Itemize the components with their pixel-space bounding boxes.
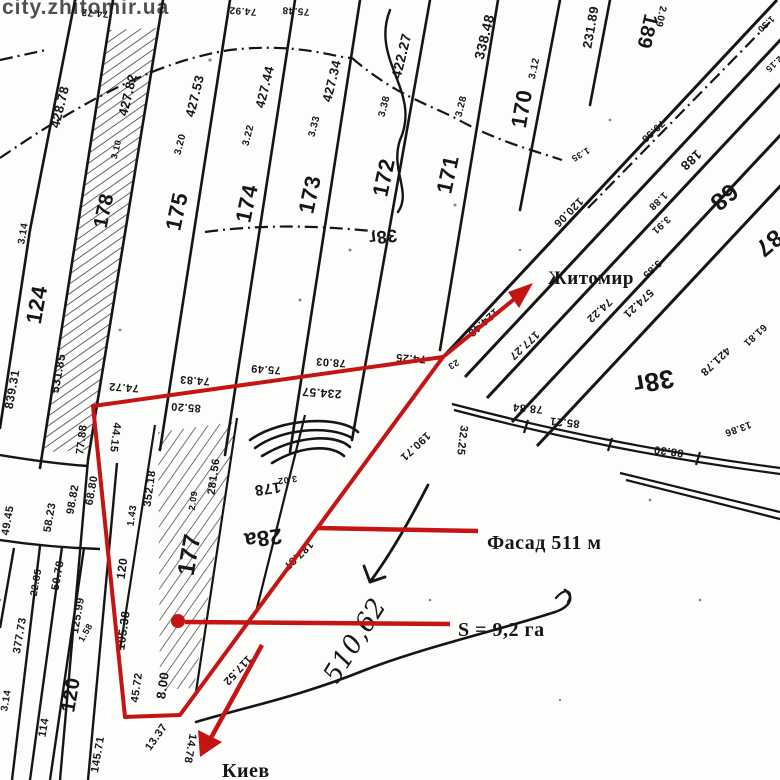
red-arrowheads-and-dot <box>171 283 533 757</box>
map-measure-label: 8.00 <box>153 671 172 700</box>
map-measure-label: 75.49 <box>250 362 281 376</box>
diagonal-road-band <box>443 0 780 446</box>
map-measure-label: 38г <box>367 225 398 248</box>
map-measure-label: 49.45 <box>0 505 17 537</box>
map-measure-label: 45.72 <box>129 672 145 703</box>
map-measure-label: 44.15 <box>107 422 123 453</box>
map-measure-label: 190.71 <box>398 429 433 463</box>
map-measure-label: 38г <box>631 364 677 401</box>
map-measure-label: 88.30 <box>653 443 684 459</box>
map-measure-label: 3.20 <box>173 133 189 156</box>
map-measure-label: 377.73 <box>11 616 29 654</box>
map-measure-label: 77.88 <box>74 424 90 455</box>
map-measure-label: 75.48 <box>282 4 310 17</box>
map-measure-label: 2.09 <box>653 5 669 28</box>
site-watermark: city.zhitomir.ua <box>2 0 169 19</box>
map-measure-label: 173 <box>293 173 325 216</box>
map-measure-label: 3.28 <box>454 95 470 118</box>
label-zhytomyr: Житомир <box>548 268 634 289</box>
map-measure-label: 422.27 <box>388 32 415 80</box>
map-measure-label: 13.37 <box>143 722 170 753</box>
kyiv-arrow-line <box>206 645 262 747</box>
kyiv-arrowhead <box>198 730 222 757</box>
map-measure-label: 3.02 <box>277 474 298 487</box>
map-measure-label: 85.21 <box>549 414 580 429</box>
map-measure-label: 3.14 <box>0 689 14 712</box>
map-measure-label: 3.12 <box>527 57 542 80</box>
map-canvas: 74.7274.9275.48428.78427.823.10178427.53… <box>0 0 780 780</box>
map-measure-label: 50.78 <box>50 560 67 592</box>
map-measure-label: 352.18 <box>142 470 159 508</box>
cadastral-map-scan: 74.7274.9275.48428.78427.823.10178427.53… <box>0 0 780 780</box>
map-measure-label: 87 <box>750 224 780 262</box>
map-measure-label: 428.78 <box>47 84 72 129</box>
label-kyiv: Киев <box>222 760 270 780</box>
map-measure-label: 427.34 <box>319 58 344 103</box>
map-measure-label: 120 <box>114 557 131 580</box>
map-measure-label: 74.83 <box>179 373 210 387</box>
map-measure-label: 114 <box>36 717 51 738</box>
map-measure-label: 78.03 <box>315 355 346 369</box>
map-measure-label: 23 <box>446 358 461 372</box>
map-measure-label: 3.91 <box>649 213 672 236</box>
label-area: S = 9,2 га <box>458 619 545 641</box>
map-measure-label: 32.25 <box>454 425 470 456</box>
map-measure-label: 178 <box>253 478 282 499</box>
map-measure-label: 28а <box>242 523 284 553</box>
map-measure-label: 1.30 <box>755 14 776 35</box>
map-measure-label: 74.22 <box>584 296 614 325</box>
map-measure-label: 175 <box>160 190 192 233</box>
map-measure-label: 13.86 <box>723 418 753 438</box>
map-measure-label: 421.78 <box>698 344 733 378</box>
road-double-lines <box>452 404 780 519</box>
map-measure-label: 427.44 <box>252 64 277 109</box>
map-measure-label: 58.23 <box>42 502 59 534</box>
map-measure-label: 3.22 <box>241 124 257 147</box>
map-measure-label: 574.21 <box>621 286 656 320</box>
map-measure-label: 85.20 <box>170 400 201 414</box>
label-facade: Фасад 511 м <box>487 532 601 554</box>
map-measure-label: 231.89 <box>579 5 601 50</box>
map-measure-label: 170 <box>506 88 537 130</box>
map-measure-label: 78.84 <box>512 401 543 416</box>
map-measure-label: 427.53 <box>182 73 207 118</box>
map-measure-label: 174 <box>230 182 262 225</box>
map-measure-label: 3.38 <box>377 95 393 118</box>
facade-callout-line <box>317 528 478 531</box>
map-measure-label: 1.35 <box>570 145 592 163</box>
map-measure-label: 338.48 <box>471 13 498 61</box>
map-measure-label: 3.85 <box>640 257 663 280</box>
map-measure-label: 98.82 <box>65 484 82 516</box>
map-measure-label: 74.92 <box>229 4 257 17</box>
map-measure-label: 14.78 <box>181 733 198 765</box>
map-measure-label: 61.81 <box>741 321 769 348</box>
zhytomyr-arrowhead <box>508 283 533 308</box>
map-measure-label: 1.43 <box>126 504 140 527</box>
map-measure-label: 839.31 <box>2 369 23 411</box>
map-measure-label: 3.33 <box>307 115 323 138</box>
map-measure-label: 171 <box>431 153 463 196</box>
map-measure-label: 120 <box>57 676 85 714</box>
map-measure-label: 234.57 <box>301 385 342 402</box>
zhytomyr-arrow-line <box>443 292 523 357</box>
map-measure-label: 22.85 <box>29 568 45 597</box>
parcel-hatching <box>43 28 236 690</box>
map-measure-label: 74.72 <box>108 380 139 394</box>
area-anchor-dot <box>171 614 185 628</box>
area-callout-line <box>185 622 450 624</box>
map-measure-label: 124 <box>21 283 52 325</box>
